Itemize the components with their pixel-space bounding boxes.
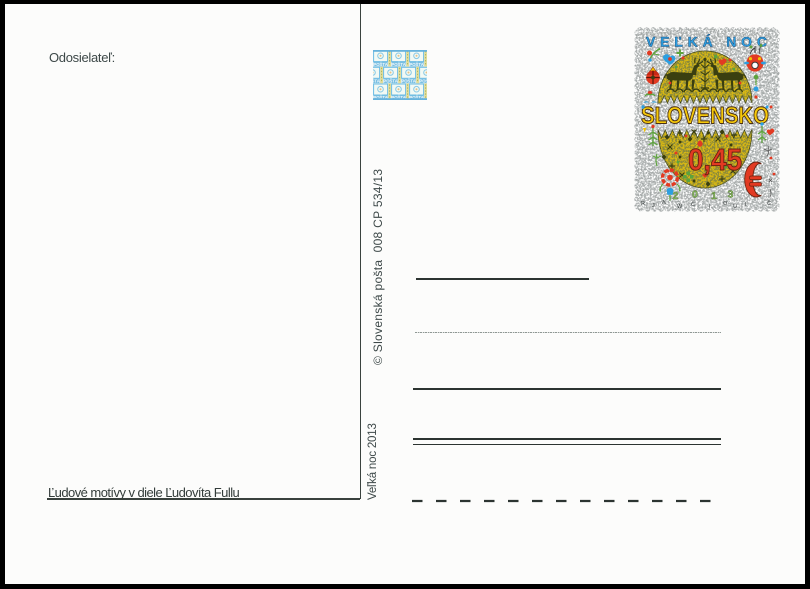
svg-text:VEĽKÁ NOC: VEĽKÁ NOC <box>646 34 767 50</box>
svg-text:R: R <box>641 201 645 207</box>
svg-text:O: O <box>723 201 728 207</box>
svg-text:Č: Č <box>691 201 695 208</box>
svg-text:POŠTA: POŠTA <box>419 79 427 84</box>
svg-text:Λ: Λ <box>662 200 666 206</box>
svg-text:2: 2 <box>673 190 679 202</box>
svg-text:0: 0 <box>692 189 698 201</box>
svg-text:3: 3 <box>728 189 734 201</box>
svg-text:POŠTA: POŠTA <box>373 62 387 67</box>
svg-text:0,45: 0,45 <box>688 142 742 177</box>
svg-text:Č: Č <box>767 200 771 207</box>
svg-text:POŠTA: POŠTA <box>401 79 415 84</box>
svg-text:1: 1 <box>711 190 717 202</box>
svg-text:POŠTA: POŠTA <box>373 79 380 84</box>
svg-text:POŠTA: POŠTA <box>383 79 397 84</box>
svg-text:U: U <box>733 204 737 210</box>
svg-text:SLOVENSKO: SLOVENSKO <box>641 103 769 130</box>
svg-text:J: J <box>652 203 655 209</box>
svg-text:POŠTA: POŠTA <box>409 62 423 67</box>
svg-text:POŠTA: POŠTA <box>391 62 405 67</box>
svg-text:W: W <box>677 204 683 210</box>
